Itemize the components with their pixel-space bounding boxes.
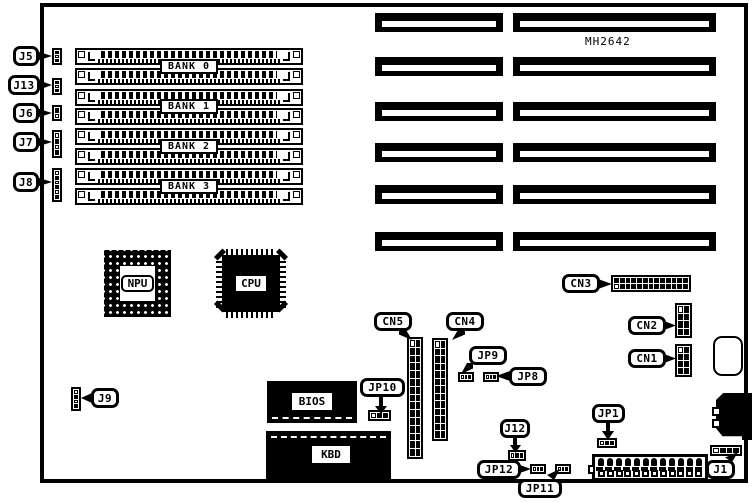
pin-cell [649, 284, 654, 289]
jumper-cell [377, 413, 382, 418]
callout-j5: J5 [13, 46, 39, 66]
jumper-cell [74, 400, 78, 404]
isa-slot [513, 102, 716, 121]
jumper-cell [540, 467, 543, 471]
callout-jp1: JP1 [592, 404, 625, 423]
pin-cell [441, 371, 446, 378]
pin-cell [672, 284, 677, 289]
jumper-cell [713, 448, 719, 453]
pin-cell [410, 441, 415, 448]
pin-cell [678, 368, 683, 374]
isa-slot [375, 143, 503, 162]
callout-jp9: JP9 [469, 346, 507, 365]
callout-j6: J6 [13, 103, 39, 123]
pin-cell [626, 284, 631, 289]
power-pin [687, 458, 693, 466]
pin-cell [410, 356, 415, 363]
pin-cell [416, 371, 421, 378]
power-pad [624, 470, 631, 477]
pin-cell [410, 379, 415, 386]
pin-cell [678, 347, 683, 353]
pin-cell [435, 386, 440, 393]
power-pad [616, 470, 623, 477]
jumper-cell [610, 441, 614, 445]
isa-slot [375, 13, 503, 32]
bank0-label: BANK 0 [160, 59, 218, 74]
jp1-jumper [597, 438, 617, 448]
pin-cell [416, 426, 421, 433]
jumper-cell [55, 89, 59, 92]
jumper-cell [383, 413, 388, 418]
callout-j9: J9 [91, 388, 119, 408]
pin-cell [416, 356, 421, 363]
power-pin [678, 458, 684, 466]
pin-cell [410, 363, 415, 370]
pin-cell [416, 402, 421, 409]
j8-jumper [52, 168, 62, 202]
jumper-cell [74, 390, 78, 394]
pin-cell [410, 410, 415, 417]
pin-cell [654, 284, 659, 289]
jumper-cell [55, 59, 59, 62]
pin-cell [416, 379, 421, 386]
pin-cell [666, 278, 671, 283]
pin-cell [684, 361, 689, 367]
pin-cell [643, 278, 648, 283]
callout-cn3: CN3 [562, 274, 600, 293]
pin-cell [416, 387, 421, 394]
pin-cell [684, 329, 689, 336]
pin-cell [678, 354, 683, 360]
pin-cell [684, 368, 689, 374]
jumper-cell [493, 375, 496, 379]
power-pin-row [598, 458, 702, 466]
jp8-jumper [483, 372, 499, 382]
callout-jp10: JP10 [360, 378, 405, 397]
pin-cell [678, 329, 683, 336]
kbd-chip-label: KBD [312, 446, 350, 463]
cn1-header [675, 344, 692, 377]
isa-slot [375, 232, 503, 251]
motherboard-diagram: MH2642 BANK 0 BANK 1 BANK 2 BANK 3 NPU C… [0, 0, 754, 504]
bank2-label: BANK 2 [160, 139, 218, 154]
cn4-header [432, 338, 448, 441]
pin-cell [678, 314, 683, 321]
callout-cn1: CN1 [628, 349, 666, 368]
j13-jumper [52, 78, 62, 95]
jumper-cell [55, 185, 59, 189]
jumper-cell [720, 448, 726, 453]
jumper-cell [55, 139, 59, 144]
pin-cell [435, 416, 440, 423]
power-pin [625, 458, 631, 466]
jumper-cell [55, 171, 59, 175]
pin-cell [410, 426, 415, 433]
pin-cell [416, 449, 421, 456]
callout-j12: J12 [500, 419, 530, 438]
pin-cell [410, 434, 415, 441]
cn5-header [407, 337, 423, 459]
jumper-cell [55, 176, 59, 180]
pin-cell [416, 418, 421, 425]
pin-cell [620, 278, 625, 283]
pin-cell [410, 371, 415, 378]
jumper-cell [55, 133, 59, 138]
power-pin [696, 458, 702, 466]
power-pin [669, 458, 675, 466]
pin-cell [435, 424, 440, 431]
pin-cell [435, 409, 440, 416]
pin-cell [678, 306, 683, 313]
pin-cell [666, 284, 671, 289]
pin-cell [637, 278, 642, 283]
pin-cell [441, 416, 446, 423]
jumper-cell [55, 150, 59, 155]
jumper-cell [74, 395, 78, 399]
pin-cell [626, 278, 631, 283]
cn3-header [611, 275, 691, 292]
pin-cell [435, 379, 440, 386]
j6-jumper [52, 105, 62, 121]
keyboard-din-connector [716, 393, 752, 440]
callout-jp8: JP8 [509, 367, 547, 386]
power-pad [598, 470, 605, 477]
callout-cn2: CN2 [628, 316, 666, 335]
isa-slot [513, 185, 716, 204]
pin-cell [416, 363, 421, 370]
pin-cell [441, 409, 446, 416]
jumper-cell [511, 453, 514, 458]
power-pad [633, 470, 640, 477]
socket-pins [101, 131, 277, 138]
jumper-cell [468, 375, 471, 379]
jumper-cell [55, 114, 59, 119]
power-connector-tab [588, 465, 595, 474]
npu-chip-label: NPU [121, 275, 154, 292]
cpu-pins [226, 312, 276, 318]
power-pin [660, 458, 666, 466]
pin-cell [620, 284, 625, 289]
socket-pins [101, 51, 277, 58]
pin-cell [614, 284, 619, 289]
jumper-cell [733, 448, 739, 453]
pin-cell [435, 341, 440, 348]
jumper-cell [533, 467, 536, 471]
cpu-chip-label: CPU [236, 276, 266, 291]
jumper-cell [490, 375, 493, 379]
pin-cell [660, 278, 665, 283]
pin-cell [416, 348, 421, 355]
power-connector [592, 454, 708, 481]
jumper-cell [600, 441, 604, 445]
pin-cell [416, 410, 421, 417]
pin-cell [410, 418, 415, 425]
jumper-cell [461, 375, 464, 379]
isa-slot [513, 232, 716, 251]
isa-slot [513, 143, 716, 162]
power-pin [598, 458, 604, 466]
pin-cell [435, 431, 440, 438]
pin-cell [410, 395, 415, 402]
jumper-cell [55, 145, 59, 150]
pin-cell [684, 314, 689, 321]
callout-j13: J13 [8, 75, 40, 95]
jumper-cell [565, 467, 568, 471]
pin-cell [654, 278, 659, 283]
jumper-cell [465, 375, 468, 379]
isa-slot [513, 57, 716, 76]
kbd-chip-notch [271, 436, 386, 438]
pin-cell [410, 340, 415, 347]
pin-cell [416, 434, 421, 441]
pin-cell [672, 278, 677, 283]
jumper-cell [55, 190, 59, 194]
pin-cell [637, 284, 642, 289]
pin-cell [684, 306, 689, 313]
pin-cell [441, 424, 446, 431]
pin-cell [410, 387, 415, 394]
callout-cn4: CN4 [446, 312, 484, 331]
pin-cell [683, 284, 688, 289]
pin-cell [684, 354, 689, 360]
jumper-cell [727, 448, 733, 453]
jumper-cell [562, 467, 565, 471]
pin-cell [631, 278, 636, 283]
power-pad [607, 470, 614, 477]
power-pin [616, 458, 622, 466]
power-pad [677, 470, 684, 477]
jp12-jumper [530, 464, 546, 474]
din-connector-notch [712, 419, 721, 428]
pin-cell [435, 394, 440, 401]
jumper-cell [520, 453, 523, 458]
pin-cell [684, 347, 689, 353]
power-pin [607, 458, 613, 466]
jumper-cell [55, 81, 59, 84]
callout-j1: J1 [706, 460, 735, 479]
pin-cell [441, 386, 446, 393]
j5-jumper [52, 48, 62, 65]
power-pin [651, 458, 657, 466]
pin-cell [435, 401, 440, 408]
pin-cell [677, 278, 682, 283]
bank1-label: BANK 1 [160, 99, 218, 114]
power-pad-row [598, 470, 702, 477]
model-number-label: MH2642 [585, 35, 631, 48]
jumper-cell [55, 51, 59, 54]
jumper-cell [55, 55, 59, 58]
cn2-header [675, 303, 692, 338]
jumper-cell [55, 108, 59, 113]
jumper-cell [515, 453, 518, 458]
isa-slot [375, 185, 503, 204]
pin-cell [649, 278, 654, 283]
callout-cn5: CN5 [374, 312, 412, 331]
pin-cell [441, 394, 446, 401]
power-pin [643, 458, 649, 466]
pin-cell [441, 401, 446, 408]
power-pin [634, 458, 640, 466]
pin-cell [410, 348, 415, 355]
jumper-cell [55, 195, 59, 199]
pin-cell [435, 371, 440, 378]
isa-slot [375, 102, 503, 121]
pin-cell [410, 449, 415, 456]
pin-cell [684, 321, 689, 328]
pin-cell [435, 364, 440, 371]
jumper-cell [605, 441, 609, 445]
pin-cell [441, 349, 446, 356]
jumper-cell [55, 181, 59, 185]
pin-cell [441, 364, 446, 371]
pin-cell [631, 284, 636, 289]
pin-cell [660, 284, 665, 289]
jp9-jumper [458, 372, 474, 382]
pin-cell [416, 340, 421, 347]
jumper-cell [74, 404, 78, 408]
pin-cell [678, 321, 683, 328]
power-pad [669, 470, 676, 477]
isa-slot [513, 13, 716, 32]
jumper-cell [55, 85, 59, 88]
pin-cell [435, 356, 440, 363]
power-pad [651, 470, 658, 477]
callout-jp12: JP12 [477, 460, 521, 479]
pin-cell [614, 278, 619, 283]
jumper-cell [486, 375, 489, 379]
bios-chip-notch [272, 417, 352, 419]
power-pad [695, 470, 702, 477]
pin-cell [677, 284, 682, 289]
pin-cell [643, 284, 648, 289]
din-connector-notch [712, 407, 721, 416]
j1-header [710, 445, 742, 456]
isa-slot [375, 57, 503, 76]
power-pad [686, 470, 693, 477]
callout-j7: J7 [13, 132, 39, 152]
pin-cell [410, 402, 415, 409]
socket-pins [101, 171, 277, 178]
bios-chip-label: BIOS [292, 393, 332, 410]
power-pad [642, 470, 649, 477]
pin-cell [441, 379, 446, 386]
pin-cell [441, 431, 446, 438]
callout-j8: J8 [13, 172, 39, 192]
callout-jp11: JP11 [518, 479, 562, 498]
din-connector-outline [713, 336, 743, 376]
pin-cell [441, 341, 446, 348]
pin-cell [441, 356, 446, 363]
j7-jumper [52, 130, 62, 158]
jumper-cell [371, 413, 376, 418]
pin-cell [435, 349, 440, 356]
pin-cell [416, 395, 421, 402]
socket-pins [101, 92, 277, 99]
power-pad [660, 470, 667, 477]
pin-cell [416, 441, 421, 448]
jumper-cell [537, 467, 540, 471]
bank3-label: BANK 3 [160, 179, 218, 194]
pin-cell [683, 278, 688, 283]
j9-jumper [71, 387, 81, 411]
pin-cell [678, 361, 683, 367]
